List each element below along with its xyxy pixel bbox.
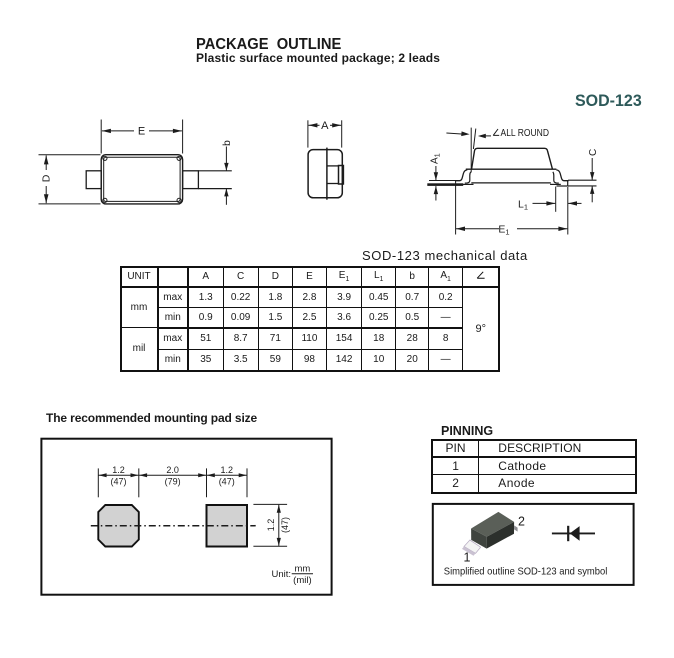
svg-text:L1: L1	[518, 199, 528, 212]
svg-text:(47): (47)	[219, 477, 235, 487]
svg-text:(47): (47)	[280, 517, 290, 533]
svg-text:(47): (47)	[110, 477, 126, 487]
svg-text:mm: mm	[294, 564, 310, 575]
svg-text:C: C	[588, 149, 599, 156]
svg-text:1.2: 1.2	[266, 519, 276, 532]
svg-text:E1: E1	[498, 224, 509, 237]
svg-text:Unit:: Unit:	[272, 569, 292, 580]
svg-text:Simplified outline SOD-123 and: Simplified outline SOD-123 and symbol	[444, 566, 608, 578]
svg-text:D: D	[40, 174, 52, 182]
svg-text:b: b	[221, 140, 233, 146]
svg-text:2: 2	[518, 515, 525, 529]
svg-text:2.0: 2.0	[166, 465, 179, 475]
svg-text:1.2: 1.2	[112, 465, 125, 475]
svg-text:(mil): (mil)	[293, 575, 311, 586]
svg-text:1: 1	[464, 551, 471, 565]
svg-text:(79): (79)	[165, 477, 181, 487]
svg-text:A1: A1	[430, 153, 442, 164]
svg-text:1.2: 1.2	[220, 465, 233, 475]
svg-text:ALL ROUND: ALL ROUND	[501, 127, 550, 139]
svg-text:E: E	[138, 126, 145, 138]
svg-text:A: A	[321, 120, 329, 132]
